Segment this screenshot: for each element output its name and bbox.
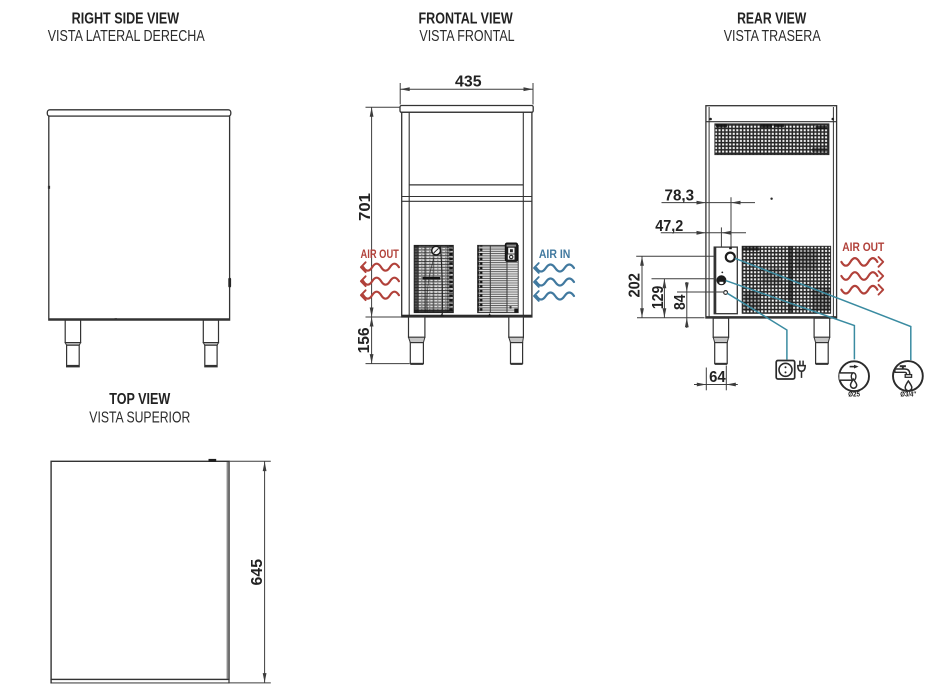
svg-text:FRONTAL VIEW: FRONTAL VIEW [419, 10, 514, 27]
svg-text:78,3: 78,3 [665, 187, 695, 204]
svg-text:701: 701 [357, 193, 374, 221]
svg-text:Ø25: Ø25 [848, 392, 860, 399]
svg-text:VISTA LATERAL DERECHA: VISTA LATERAL DERECHA [48, 28, 205, 45]
svg-text:AIR IN: AIR IN [539, 247, 571, 261]
svg-text:TOP VIEW: TOP VIEW [109, 391, 171, 408]
svg-text:156: 156 [356, 327, 373, 353]
svg-text:84: 84 [672, 294, 689, 310]
svg-text:645: 645 [249, 559, 266, 586]
svg-text:REAR VIEW: REAR VIEW [737, 10, 807, 27]
svg-text:RIGHT SIDE VIEW: RIGHT SIDE VIEW [72, 10, 180, 27]
svg-text:VISTA FRONTAL: VISTA FRONTAL [419, 28, 514, 45]
svg-text:129: 129 [650, 286, 667, 310]
svg-text:AIR OUT: AIR OUT [361, 247, 400, 261]
svg-text:Ø3/4″: Ø3/4″ [900, 392, 917, 399]
svg-text:VISTA TRASERA: VISTA TRASERA [724, 28, 821, 45]
svg-text:VISTA SUPERIOR: VISTA SUPERIOR [89, 409, 190, 426]
svg-text:202: 202 [626, 273, 643, 298]
svg-text:435: 435 [455, 74, 482, 91]
svg-text:AIR OUT: AIR OUT [842, 240, 885, 254]
svg-text:64: 64 [709, 369, 726, 386]
